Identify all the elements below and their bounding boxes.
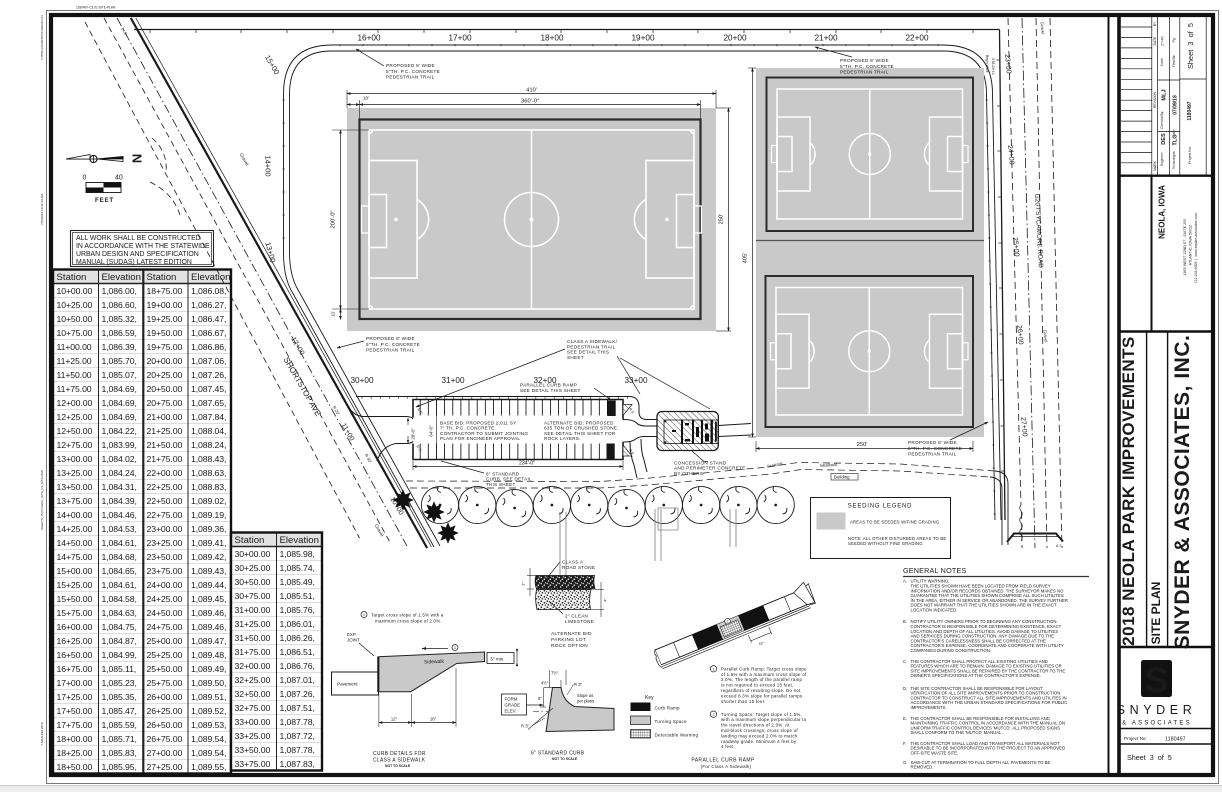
svg-text:Pavement: Pavement (337, 682, 358, 687)
svg-text:Slope as: Slope as (577, 693, 593, 698)
svg-text:1,089.43,: 1,089.43, (191, 566, 226, 576)
svg-text:19+75.00: 19+75.00 (147, 342, 183, 352)
svg-text:6": 6" (538, 696, 542, 701)
svg-text:S: S (1145, 661, 1168, 700)
svg-text:31+50.00: 31+50.00 (235, 633, 271, 643)
svg-text:16+00: 16+00 (358, 34, 381, 43)
svg-text:21+25.00: 21+25.00 (147, 426, 183, 436)
svg-text:1,088.04,: 1,088.04, (191, 426, 226, 436)
svg-text:15+25.00: 15+25.00 (57, 580, 93, 590)
svg-text:7/25/2018 10:42:18 AM: 7/25/2018 10:42:18 AM (40, 193, 44, 225)
svg-text:SEEDING LEGEND: SEEDING LEGEND (848, 504, 913, 510)
svg-text:1,089.53,: 1,089.53, (191, 720, 226, 730)
svg-text:MLJ: MLJ (1162, 89, 1168, 100)
svg-text:1"=40': 1"=40' (1161, 36, 1165, 46)
svg-text:12+50.00: 12+50.00 (57, 426, 93, 436)
svg-text:22+00.00: 22+00.00 (147, 468, 183, 478)
svg-text:1,087.83,: 1,087.83, (280, 759, 315, 769)
svg-text:Scale:: Scale: (1160, 57, 1164, 66)
svg-text:1,084.24,: 1,084.24, (102, 468, 137, 478)
svg-text:1,089.48,: 1,089.48, (191, 650, 226, 660)
svg-text:26+50.00: 26+50.00 (147, 720, 183, 730)
svg-text:Station: Station (235, 535, 265, 546)
svg-text:CLASS A SIDEWALK: CLASS A SIDEWALK (373, 757, 426, 763)
svg-text:200'-0": 200'-0" (331, 211, 337, 229)
svg-text:33+75.00: 33+75.00 (235, 759, 271, 769)
svg-text:1,087.51,: 1,087.51, (280, 703, 315, 713)
svg-text:Turning Space: Turning Space (655, 719, 688, 724)
svg-text:64'-0": 64'-0" (429, 425, 434, 437)
svg-text:1,089.52,: 1,089.52, (191, 706, 226, 716)
svg-text:23+25.00: 23+25.00 (147, 538, 183, 548)
svg-text:1,089.54,: 1,089.54, (191, 748, 226, 758)
svg-text:URBAN DESIGN AND SPECIFICATION: URBAN DESIGN AND SPECIFICATION (76, 251, 199, 258)
svg-text:shorter than 15 feet.: shorter than 15 feet. (721, 699, 766, 704)
svg-text:1,085.23,: 1,085.23, (102, 678, 137, 688)
svg-text:26+00.00: 26+00.00 (147, 692, 183, 702)
svg-text:1,087.26,: 1,087.26, (280, 689, 315, 699)
svg-text:1,086.26,: 1,086.26, (280, 633, 315, 643)
svg-text:1,085.51,: 1,085.51, (280, 591, 315, 601)
svg-text:11+25.00: 11+25.00 (57, 356, 92, 366)
svg-text:CLASS A: CLASS A (562, 560, 584, 565)
svg-text:EXP.: EXP. (347, 632, 356, 637)
svg-text:Turning Space: Target slope: Turning Space: Target slope of 1.5%, (721, 712, 802, 717)
svg-text:30+00: 30+00 (351, 376, 374, 385)
svg-text:CLASS A SIDEWALK/: CLASS A SIDEWALK/ (567, 339, 618, 344)
svg-text:1,084.69,: 1,084.69, (102, 398, 137, 408)
svg-text:32+00.00: 32+00.00 (235, 661, 271, 671)
svg-text:of 1.5% with a maximum cr: of 1.5% with a maximum cross slope of (721, 672, 807, 677)
svg-text:1,089.55,: 1,089.55, (191, 762, 226, 772)
svg-text:1,084.69,: 1,084.69, (102, 412, 137, 422)
svg-text:ROAD STONE: ROAD STONE (562, 565, 595, 570)
svg-text:4 feet.: 4 feet. (721, 744, 735, 749)
svg-text:21+75.00: 21+75.00 (147, 454, 183, 464)
svg-text:27+25.00: 27+25.00 (147, 762, 183, 772)
svg-text:24+25.00: 24+25.00 (147, 594, 183, 604)
svg-text:MANUAL (SUDAS) LATEST EDITION: MANUAL (SUDAS) LATEST EDITION (76, 259, 192, 266)
svg-text:BY OTHERS: BY OTHERS (674, 471, 703, 476)
svg-text:D.: D. (903, 686, 907, 691)
svg-text:33+50.00: 33+50.00 (235, 745, 271, 755)
svg-text:1,087.72,: 1,087.72, (280, 731, 315, 741)
svg-text:25+75.00: 25+75.00 (147, 678, 183, 688)
svg-text:40: 40 (115, 175, 123, 182)
svg-text:1,084.39,: 1,084.39, (102, 496, 137, 506)
svg-text:11+75.00: 11+75.00 (57, 384, 92, 394)
svg-text:ATLANTIC, IOWA 50022: ATLANTIC, IOWA 50022 (1188, 225, 1192, 265)
svg-text:G.: G. (903, 760, 908, 765)
svg-text:(For Class A Sidewalk): (For Class A Sidewalk) (701, 764, 752, 769)
svg-text:26+25.00: 26+25.00 (147, 706, 183, 716)
svg-text:24+50.00: 24+50.00 (147, 608, 183, 618)
svg-text:1,085.47,: 1,085.47, (102, 706, 137, 716)
svg-text:1,089.49,: 1,089.49, (191, 664, 226, 674)
svg-text:21+00: 21+00 (815, 34, 838, 43)
svg-text:1,084.58,: 1,084.58, (102, 594, 137, 604)
svg-text:20+50.00: 20+50.00 (147, 384, 183, 394)
svg-text:PARKING LOT: PARKING LOT (551, 637, 586, 643)
svg-text:Date:: Date: (1172, 129, 1176, 137)
svg-text:14+00: 14+00 (264, 155, 273, 176)
svg-text:25+50.00: 25+50.00 (147, 664, 183, 674)
svg-text:1,088.24,: 1,088.24, (191, 440, 226, 450)
svg-text:1,084.22,: 1,084.22, (102, 426, 137, 436)
svg-text:Technologist:: Technologist: (1172, 151, 1176, 170)
svg-text:SITE PLAN: SITE PLAN (1149, 582, 1163, 645)
svg-text:PROPOSED 8' WIDE: PROPOSED 8' WIDE (840, 58, 889, 63)
svg-text:5"TH. P.C. CONCRETE: 5"TH. P.C. CONCRETE (908, 446, 962, 451)
svg-text:18+75.00: 18+75.00 (147, 286, 183, 296)
svg-text:1,089.54,: 1,089.54, (191, 734, 226, 744)
svg-text:1,089.50,: 1,089.50, (191, 678, 226, 688)
svg-text:2018 NEOLA PARK IMPROVEMENTS: 2018 NEOLA PARK IMPROVEMENTS (1119, 336, 1138, 646)
svg-text:16+00.00: 16+00.00 (57, 622, 93, 632)
svg-text:1,084.68,: 1,084.68, (102, 552, 137, 562)
svg-text:A.7: A.7 (1056, 544, 1061, 548)
svg-text:30+25.00: 30+25.00 (235, 563, 271, 573)
svg-text:10+25.00: 10+25.00 (57, 300, 93, 310)
svg-text:14+00.00: 14+00.00 (57, 510, 93, 520)
svg-text:1,089.41,: 1,089.41, (191, 538, 226, 548)
svg-text:1,089.44,: 1,089.44, (191, 580, 226, 590)
svg-text:2: 2 (712, 713, 714, 717)
svg-text:REMOVED.: REMOVED. (911, 765, 934, 770)
svg-text:1,086.51,: 1,086.51, (280, 647, 315, 657)
svg-text:Project No:: Project No: (1188, 146, 1192, 164)
svg-text:1,085.11,: 1,085.11, (102, 664, 137, 674)
svg-text:maximum cross slope of 2.: maximum cross slope of 2.0%. (375, 618, 442, 623)
svg-text:1,085.35,: 1,085.35, (102, 692, 137, 702)
svg-text:1,085.74,: 1,085.74, (280, 563, 315, 573)
svg-text:exceed 8.3% slope for para: exceed 8.3% slope for parallel ramps (721, 693, 803, 698)
svg-text:NEOLA, IOWA: NEOLA, IOWA (1158, 185, 1167, 239)
svg-text:21+00.00: 21+00.00 (147, 412, 183, 422)
svg-text:C.: C. (903, 659, 907, 664)
svg-text:1,084.87,: 1,084.87, (102, 636, 137, 646)
svg-text:PARALLEL CURB RAMP: PARALLEL CURB RAMP (520, 383, 577, 388)
svg-text:1,086.59,: 1,086.59, (102, 328, 137, 338)
svg-text:STA 23+10: STA 23+10 (991, 58, 995, 75)
svg-text:B.: B. (903, 619, 907, 624)
svg-text:1,089.46,: 1,089.46, (191, 622, 226, 632)
svg-text:1,085.83,: 1,085.83, (102, 748, 137, 758)
svg-text:31+00.00: 31+00.00 (235, 605, 271, 615)
svg-text:Building: Building (834, 475, 850, 480)
svg-text:1,087.78,: 1,087.78, (280, 717, 315, 727)
svg-text:Engineer:: Engineer: (1160, 152, 1164, 166)
svg-text:Station: Station (147, 272, 177, 283)
svg-text:1,086.27,: 1,086.27, (191, 300, 226, 310)
svg-text:1180497: 1180497 (1187, 101, 1193, 120)
svg-text:2" CLEAN: 2" CLEAN (565, 614, 588, 619)
svg-text:6" STANDARD CURB: 6" STANDARD CURB (531, 751, 585, 757)
svg-text:1,084.02,: 1,084.02, (102, 454, 137, 464)
svg-text:FORM: FORM (505, 697, 518, 702)
svg-text:Parallel Curb Ramp: Target c: Parallel Curb Ramp: Target cross slope (721, 666, 807, 671)
svg-text:5"TH. P.C. CONCRETE: 5"TH. P.C. CONCRETE (386, 69, 440, 74)
svg-text:SHEET: SHEET (567, 355, 584, 360)
svg-text:18+00: 18+00 (541, 34, 564, 43)
svg-text:1,087.26,: 1,087.26, (191, 370, 226, 380)
svg-text:ALTERNATE BID: ALTERNATE BID (551, 631, 592, 637)
svg-text:30+50.00: 30+50.00 (235, 577, 271, 587)
svg-text:1,086.47,: 1,086.47, (191, 314, 226, 324)
svg-text:1,084.69,: 1,084.69, (102, 384, 137, 394)
svg-text:31+75.00: 31+75.00 (235, 647, 271, 657)
svg-text:NOT TO SCALE: NOT TO SCALE (385, 764, 411, 768)
svg-text:16+75.00: 16+75.00 (57, 664, 93, 674)
svg-text:360'-0": 360'-0" (521, 98, 539, 104)
svg-text:1,084.46,: 1,084.46, (102, 510, 137, 520)
svg-text:1,085.95,: 1,085.95, (102, 762, 137, 772)
svg-text:1,087.84,: 1,087.84, (191, 412, 226, 422)
svg-text:13+25.00: 13+25.00 (57, 468, 93, 478)
svg-text:PEDESTRIAN TRAIL: PEDESTRIAN TRAIL (386, 75, 435, 80)
svg-text:15+00.00: 15+00.00 (57, 566, 93, 576)
svg-text:5"TH. P.C. CONCRETE: 5"TH. P.C. CONCRETE (840, 64, 894, 69)
svg-text:250': 250' (857, 442, 868, 448)
svg-text:LOCATION INDICATED.: LOCATION INDICATED. (911, 608, 958, 613)
svg-text:20+00: 20+00 (724, 34, 747, 43)
svg-text:PLAN FOR ENGINEER APPROVAL: PLAN FOR ENGINEER APPROVAL (440, 436, 520, 441)
svg-text:PEDESTRIAN TRAIL: PEDESTRIAN TRAIL (366, 348, 415, 353)
svg-text:ROCK LAYERS.: ROCK LAYERS. (544, 436, 581, 441)
svg-text:1: 1 (712, 668, 714, 672)
svg-text:1,086.67,: 1,086.67, (191, 328, 226, 338)
svg-text:23+50.00: 23+50.00 (147, 552, 183, 562)
svg-text:1800 WEST 22ND ST., SUITE 200: 1800 WEST 22ND ST., SUITE 200 (1183, 219, 1187, 276)
svg-text:1,086.60,: 1,086.60, (102, 300, 137, 310)
svg-text:14+75.00: 14+75.00 (57, 552, 93, 562)
svg-text:1,089.19,: 1,089.19, (191, 510, 226, 520)
svg-text:Pg:: Pg: (1172, 37, 1176, 42)
svg-text:PEDESTRIAN TRAIL: PEDESTRIAN TRAIL (567, 344, 616, 349)
svg-text:20+00.00: 20+00.00 (147, 356, 183, 366)
svg-text:18+00.00: 18+00.00 (57, 734, 93, 744)
svg-text:Checked By:: Checked By: (1160, 111, 1164, 129)
svg-text:1,088.43,: 1,088.43, (191, 454, 226, 464)
svg-text:13+50.00: 13+50.00 (57, 482, 93, 492)
svg-text:4½": 4½" (541, 681, 549, 686)
svg-text:1,084.61,: 1,084.61, (102, 538, 137, 548)
svg-text:1,087.45,: 1,087.45, (191, 384, 226, 394)
svg-text:REVISION: REVISION (1153, 91, 1157, 108)
svg-text:COMPANIES DURING CONSTRUCTIO: COMPANIES DURING CONSTRUCTION. (911, 648, 992, 653)
svg-text:Elevation: Elevation (102, 272, 141, 283)
svg-text:with a maximum slope perp: with a maximum slope perpendicular to (721, 717, 807, 722)
svg-text:1,085.76,: 1,085.76, (280, 605, 315, 615)
svg-text:T:\\PROJ\\1180497\\CADD\\C3.01: T:\\PROJ\\1180497\\CADD\\C3.01 (40, 15, 44, 60)
svg-text:Field Bk:: Field Bk: (1172, 55, 1176, 68)
svg-text:1,085.49,: 1,085.49, (280, 577, 315, 587)
svg-text:32+75.00: 32+75.00 (235, 703, 271, 713)
svg-text:1,085.07,: 1,085.07, (102, 370, 137, 380)
svg-text:07/09/18: 07/09/18 (1173, 95, 1179, 115)
svg-text:1,089.46,: 1,089.46, (191, 608, 226, 618)
svg-text:OWNER'S SPECIFICATIONS AT T: OWNER'S SPECIFICATIONS AT THE CONTRACTOR… (911, 673, 1041, 678)
svg-text:PROPOSED 8' WIDE: PROPOSED 8' WIDE (908, 440, 957, 445)
svg-text:12+75.00: 12+75.00 (57, 440, 93, 450)
svg-text:Key: Key (645, 695, 654, 701)
svg-text:GRADE: GRADE (505, 703, 521, 708)
svg-text:N: N (130, 154, 145, 163)
svg-text:1,084.75,: 1,084.75, (102, 622, 137, 632)
svg-text:1,086.01,: 1,086.01, (280, 619, 315, 629)
svg-text:0: 0 (83, 175, 87, 182)
svg-text:17+00.00: 17+00.00 (57, 678, 93, 688)
svg-text:11+00.00: 11+00.00 (57, 342, 92, 352)
svg-text:1,084.65,: 1,084.65, (102, 566, 137, 576)
svg-text:17+75.00: 17+75.00 (57, 720, 93, 730)
svg-text:JOINT: JOINT (347, 638, 360, 643)
svg-text:Sidewalk: Sidewalk (424, 659, 445, 666)
svg-text:1,084.53,: 1,084.53, (102, 524, 137, 534)
svg-text:THIS SHEET: THIS SHEET (486, 482, 516, 487)
svg-text:10': 10' (331, 311, 336, 317)
svg-text:1,087.01,: 1,087.01, (280, 675, 315, 685)
svg-text:1,084.61,: 1,084.61, (102, 580, 137, 590)
svg-text:5" min.: 5" min. (491, 656, 505, 661)
svg-text:GENERAL NOTES: GENERAL NOTES (903, 566, 966, 575)
svg-text:Elevation: Elevation (191, 272, 230, 283)
svg-text:Detectable Warning: Detectable Warning (655, 733, 699, 738)
svg-text:24+00.00: 24+00.00 (147, 580, 183, 590)
svg-text:Sheet 3 of 5: Sheet 3 of 5 (1127, 753, 1172, 762)
svg-text:1,085.71,: 1,085.71, (102, 734, 137, 744)
svg-text:landing may exceed 2.0% to: landing may exceed 2.0% to match (721, 733, 798, 738)
svg-text:1,087.65,: 1,087.65, (191, 398, 226, 408)
svg-text:22+75.00: 22+75.00 (147, 510, 183, 520)
svg-text:23+00.00: 23+00.00 (147, 524, 183, 534)
svg-text:22+00: 22+00 (906, 34, 929, 43)
svg-text:1: 1 (454, 646, 456, 650)
svg-text:13+00.00: 13+00.00 (57, 454, 93, 464)
svg-text:CURB DETAILS FOR: CURB DETAILS FOR (373, 751, 426, 757)
svg-text:712-243-6305 | www.snyder-as: 712-243-6305 | www.snyder-associates.com (1194, 213, 1198, 284)
svg-text:14+25.00: 14+25.00 (57, 524, 93, 534)
svg-text:BY: BY (1153, 21, 1157, 26)
svg-text:10': 10' (363, 96, 369, 101)
svg-text:1,087.06,: 1,087.06, (191, 356, 226, 366)
svg-text:16+50.00: 16+50.00 (57, 650, 93, 660)
svg-text:ROCK OPTION: ROCK OPTION (551, 643, 588, 649)
svg-text:mid-block crossings, cross s: mid-block crossings, cross slope of (721, 728, 798, 733)
svg-text:1,085.70,: 1,085.70, (102, 356, 137, 366)
svg-text:SHALL CONFORM TO THE 'MUTC: SHALL CONFORM TO THE 'MUTCD' MANUAL. (911, 730, 1003, 735)
svg-text:32+25.00: 32+25.00 (235, 675, 271, 685)
svg-text:PARALLEL CURB RAMP: PARALLEL CURB RAMP (691, 758, 755, 764)
svg-text:32+50.00: 32+50.00 (235, 689, 271, 699)
svg-text:19+00: 19+00 (632, 34, 655, 43)
svg-text:26+75.00: 26+75.00 (147, 734, 183, 744)
svg-text:Sheet 3 of 5: Sheet 3 of 5 (1186, 23, 1195, 69)
svg-text:F.: F. (903, 741, 906, 746)
svg-text:12+00.00: 12+00.00 (57, 398, 93, 408)
svg-text:PROPOSED 8' WIDE: PROPOSED 8' WIDE (366, 336, 415, 341)
svg-text:18+25.00: 18+25.00 (57, 748, 93, 758)
svg-text:E.: E. (903, 716, 907, 721)
svg-text:is not required to exceed: is not required to exceed 15 feet, (721, 683, 793, 688)
svg-text:NOT TO SCALE: NOT TO SCALE (552, 757, 578, 761)
svg-text:18+50.00: 18+50.00 (57, 762, 93, 772)
svg-text:1,089.47,: 1,089.47, (191, 636, 226, 646)
svg-text:1,086.39,: 1,086.39, (102, 342, 137, 352)
svg-text:FEET: FEET (95, 197, 114, 204)
svg-text:IN ACCORDANCE WITH THE STATEWI: IN ACCORDANCE WITH THE STATEWIDE (76, 243, 210, 250)
svg-text:SNYDER & ASSOCIATES, INC.: SNYDER & ASSOCIATES, INC. (1171, 335, 1194, 650)
svg-text:15+50.00: 15+50.00 (57, 594, 93, 604)
svg-text:Project No:: Project No: (1124, 736, 1147, 741)
svg-text:10+00.00: 10+00.00 (57, 286, 93, 296)
svg-text:250': 250' (719, 214, 725, 225)
svg-text:31+25.00: 31+25.00 (235, 619, 271, 629)
svg-text:ALL WORK SHALL BE CONSTRUCTED: ALL WORK SHALL BE CONSTRUCTED (76, 235, 201, 242)
svg-text:1: 1 (363, 613, 365, 617)
svg-text:SEE DETAIL THIS SHEET: SEE DETAIL THIS SHEET (520, 388, 581, 393)
svg-text:13+75.00: 13+75.00 (57, 496, 93, 506)
svg-text:10+50.00: 10+50.00 (57, 314, 93, 324)
svg-text:Target cross slope of 1.5%: Target cross slope of 1.5% with a (371, 613, 444, 618)
svg-text:R 3": R 3" (574, 682, 583, 687)
svg-text:IMPROVEMENTS.: IMPROVEMENTS. (911, 705, 947, 710)
svg-text:1,086.86,: 1,086.86, (191, 342, 226, 352)
svg-text:19+50.00: 19+50.00 (147, 328, 183, 338)
svg-text:30+00.00: 30+00.00 (235, 549, 271, 559)
svg-text:27+00.00: 27+00.00 (147, 748, 183, 758)
svg-text:2.0%. The length of the p: 2.0%. The length of the parallel ramp (721, 677, 802, 682)
svg-text:SHEETS_PLOT-GRAL_SITE_C3_SITE.: SHEETS_PLOT-GRAL_SITE_C3_SITE.DGN (40, 470, 44, 530)
svg-text:20+75.00: 20+75.00 (147, 398, 183, 408)
svg-text:1,085.59,: 1,085.59, (102, 720, 137, 730)
svg-text:18": 18" (430, 717, 437, 722)
svg-text:A.: A. (903, 579, 907, 584)
svg-text:AREAS TO BE SEEDED W/FINE: AREAS TO BE SEEDED W/FINE GRADING (850, 520, 939, 525)
svg-text:16+25.00: 16+25.00 (57, 636, 93, 646)
svg-text:PROPOSED 8' WIDE: PROPOSED 8' WIDE (386, 63, 435, 68)
svg-text:12": 12" (391, 717, 398, 722)
svg-text:1,085.98,: 1,085.98, (280, 549, 315, 559)
svg-text:OFF-SITE WASTE SITE.: OFF-SITE WASTE SITE. (911, 750, 959, 755)
svg-text:22+25.00: 22+25.00 (147, 482, 183, 492)
svg-text:1,086.00,: 1,086.00, (102, 286, 137, 296)
svg-text:28'-0": 28'-0" (411, 428, 416, 440)
svg-text:MARK: MARK (1153, 160, 1157, 171)
svg-text:14+50.00: 14+50.00 (57, 538, 93, 548)
svg-text:11+50.00: 11+50.00 (57, 370, 92, 380)
svg-text:1,089.02,: 1,089.02, (191, 496, 226, 506)
svg-text:1,089.51,: 1,089.51, (191, 692, 226, 702)
svg-text:the travel directions of 2.: the travel directions of 2.0%. At (721, 723, 790, 728)
svg-text:DES: DES (1161, 133, 1167, 145)
svg-text:R 3": R 3" (521, 724, 530, 729)
svg-text:33+00.00: 33+00.00 (235, 717, 271, 727)
svg-text:22+50.00: 22+50.00 (147, 496, 183, 506)
svg-text:33+25.00: 33+25.00 (235, 731, 271, 741)
svg-text:12+25.00: 12+25.00 (57, 412, 93, 422)
svg-text:1,088.83,: 1,088.83, (191, 482, 226, 492)
svg-text:15+75.00: 15+75.00 (57, 608, 93, 618)
svg-text:regardless of resulting slo: regardless of resulting slope. Do not (721, 688, 801, 693)
svg-text:31+00: 31+00 (442, 376, 465, 385)
svg-text:per plans: per plans (577, 698, 594, 703)
svg-text:LIMESTONE: LIMESTONE (565, 619, 594, 624)
svg-text:5"TH. P.C. CONCRETE: 5"TH. P.C. CONCRETE (366, 342, 420, 347)
svg-text:Begin Work: Begin Work (985, 55, 989, 73)
svg-text:1,087.78,: 1,087.78, (280, 745, 315, 755)
svg-text:1180497-C3.01-SITE-PLAN: 1180497-C3.01-SITE-PLAN (76, 6, 116, 10)
